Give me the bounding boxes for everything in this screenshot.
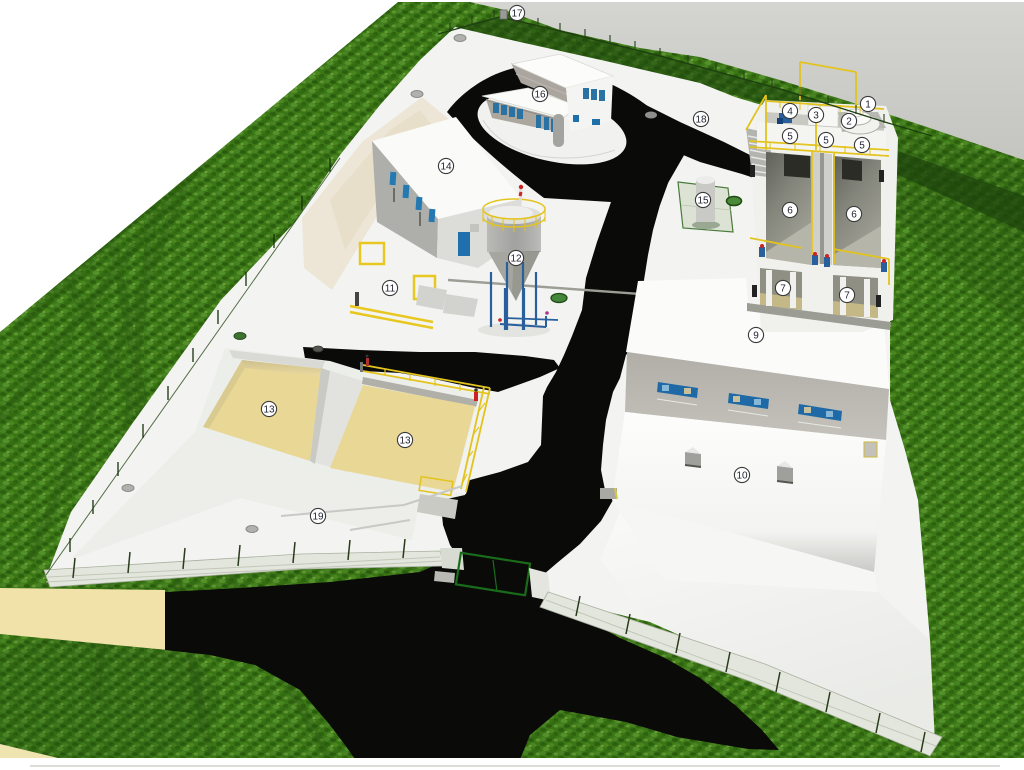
- svg-text:15: 15: [697, 196, 709, 207]
- svg-text:13: 13: [263, 405, 275, 416]
- svg-text:4: 4: [787, 107, 793, 118]
- svg-text:7: 7: [844, 291, 850, 302]
- svg-text:5: 5: [787, 132, 793, 143]
- svg-text:17: 17: [511, 9, 523, 20]
- svg-text:16: 16: [534, 90, 546, 101]
- svg-text:7: 7: [780, 284, 786, 295]
- svg-text:9: 9: [753, 331, 759, 342]
- svg-text:10: 10: [736, 471, 748, 482]
- svg-text:12: 12: [510, 254, 522, 265]
- svg-text:1: 1: [865, 100, 871, 111]
- svg-text:13: 13: [399, 436, 411, 447]
- svg-text:5: 5: [823, 136, 829, 147]
- svg-text:2: 2: [846, 117, 852, 128]
- svg-text:11: 11: [385, 284, 396, 295]
- svg-text:3: 3: [813, 111, 819, 122]
- svg-text:19: 19: [312, 512, 324, 523]
- svg-text:6: 6: [787, 206, 793, 217]
- svg-text:6: 6: [851, 210, 857, 221]
- svg-text:5: 5: [859, 141, 865, 152]
- svg-text:14: 14: [440, 162, 452, 173]
- svg-text:18: 18: [695, 115, 707, 126]
